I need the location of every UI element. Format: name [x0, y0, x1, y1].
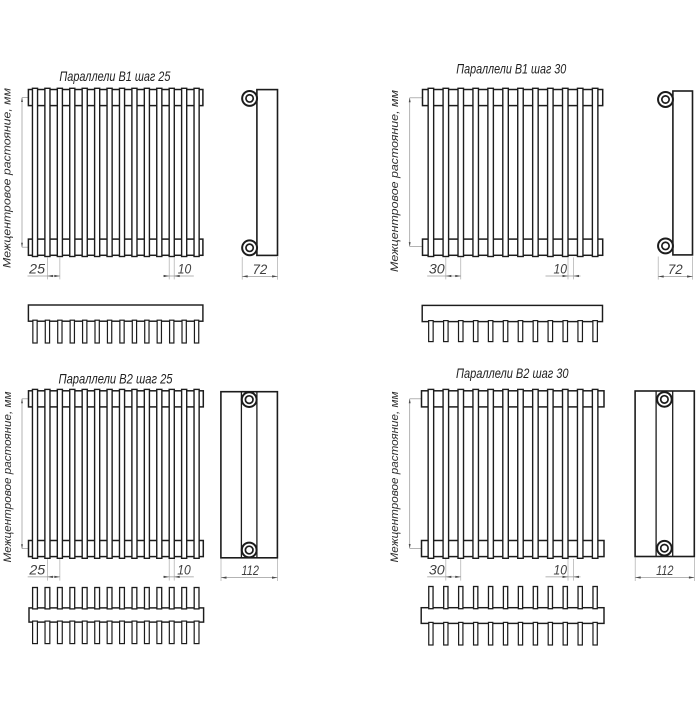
- svg-text:10: 10: [177, 561, 191, 577]
- svg-text:10: 10: [178, 260, 192, 276]
- svg-text:Параллели В2 шаг 25: Параллели В2 шаг 25: [59, 371, 173, 386]
- svg-text:Межцентровое растояние, мм: Межцентровое растояние, мм: [389, 89, 401, 272]
- svg-text:25: 25: [28, 260, 45, 276]
- svg-text:Межцентровое растояние, мм: Межцентровое растояние, мм: [389, 391, 401, 563]
- svg-text:Параллели В1 шаг 25: Параллели В1 шаг 25: [59, 69, 170, 84]
- svg-text:10: 10: [554, 561, 568, 577]
- svg-text:Параллели В2 шаг 30: Параллели В2 шаг 30: [456, 366, 569, 381]
- svg-text:Межцентровое растояние, мм: Межцентровое растояние, мм: [2, 391, 14, 563]
- svg-text:112: 112: [242, 562, 260, 578]
- svg-text:10: 10: [554, 260, 568, 276]
- svg-text:30: 30: [429, 561, 445, 577]
- svg-text:72: 72: [668, 261, 683, 277]
- svg-text:Межцентровое растояние, мм: Межцентровое растояние, мм: [2, 87, 14, 268]
- svg-text:25: 25: [28, 561, 45, 577]
- svg-text:Параллели В1 шаг 30: Параллели В1 шаг 30: [456, 62, 566, 77]
- svg-text:30: 30: [429, 260, 445, 276]
- svg-text:112: 112: [656, 562, 674, 578]
- svg-text:72: 72: [253, 261, 268, 277]
